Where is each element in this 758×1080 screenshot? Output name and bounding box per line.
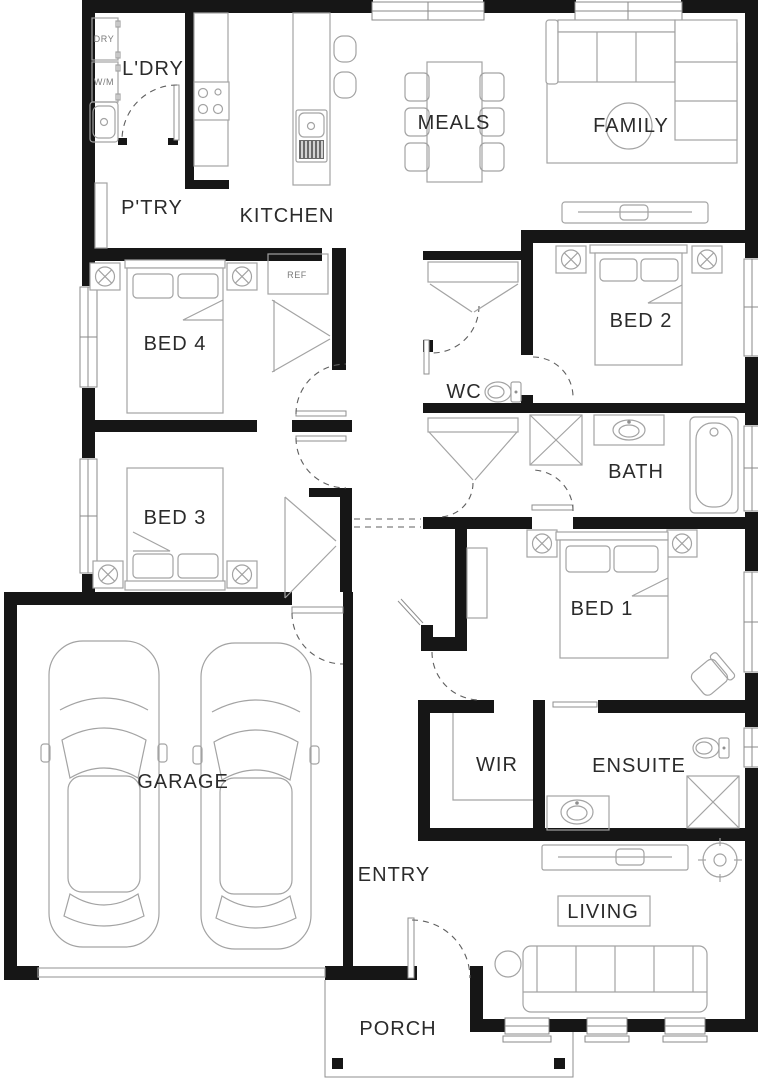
room-label-bed1: BED 1 [571, 598, 634, 620]
ensuite-toilet [693, 738, 729, 758]
bedside-table [93, 561, 123, 588]
room-label-entry: ENTRY [358, 864, 430, 886]
bedside-table [667, 530, 697, 557]
room-label-living: LIVING [567, 901, 639, 923]
pantry-shelf [95, 183, 107, 248]
car [193, 643, 319, 949]
plant [698, 838, 742, 882]
laundry-door [122, 85, 179, 140]
room-label-wc: WC [446, 381, 481, 403]
bar-stool [334, 72, 356, 98]
room-label-bed3: BED 3 [144, 507, 207, 529]
bed1-cabinet [467, 548, 487, 618]
floor-plan: L'DRY P'TRY KITCHEN MEALS FAMILY BED 4 B… [0, 0, 758, 1080]
bar-stool [334, 36, 356, 62]
living-sofa [523, 946, 707, 1012]
garage-contents [38, 641, 325, 977]
window-living-bottom-3 [663, 1018, 707, 1042]
room-label-ensuite: ENSUITE [592, 755, 686, 777]
ensuite-shower [687, 776, 739, 828]
hall-opening-dashes [354, 519, 421, 527]
linen-shelf [428, 262, 518, 282]
bed1-armchair [688, 652, 736, 700]
side-table [495, 951, 521, 977]
porch-post [332, 1058, 343, 1069]
bath-door [532, 470, 573, 511]
window-family-top [575, 0, 682, 20]
fixture-label-dryer: DRY [94, 34, 115, 44]
room-label-garage: GARAGE [137, 771, 229, 793]
fixture-label-fridge: REF [287, 270, 307, 280]
bedside-table [90, 263, 120, 290]
ensuite-door [553, 702, 597, 707]
bed2-door [533, 357, 573, 397]
window-bed2-right [744, 258, 758, 357]
bed3-bed [125, 468, 225, 590]
wc-fixtures [428, 262, 521, 480]
ensuite-vanity [547, 796, 609, 830]
bed3-furniture [93, 468, 336, 598]
room-label-porch: PORCH [359, 1018, 436, 1040]
bath-shower [530, 415, 582, 465]
bedside-table [527, 530, 557, 557]
room-label-kitchen: KITCHEN [240, 205, 335, 227]
bed4-furniture [90, 260, 330, 413]
cooktop [194, 82, 229, 120]
fixture-label-washer: W/M [94, 77, 114, 87]
bed3-robe [285, 497, 336, 598]
window-meals-top [372, 0, 484, 20]
window-living-bottom-2 [585, 1018, 629, 1042]
bed1-bed [556, 532, 668, 658]
room-label-family: FAMILY [593, 115, 669, 137]
bathtub [690, 417, 738, 513]
room-label-meals: MEALS [418, 112, 491, 134]
bed2-bed [590, 245, 687, 365]
bedside-table [227, 561, 257, 588]
family-tv-unit [562, 202, 708, 223]
room-label-bed2: BED 2 [610, 310, 673, 332]
window-bed3-left [80, 458, 97, 574]
room-label-bath: BATH [608, 461, 664, 483]
bed4-door [296, 364, 346, 416]
bed2-furniture [556, 245, 722, 365]
hall-closet-door [439, 483, 473, 517]
window-bed1-right [744, 571, 758, 673]
front-door [408, 918, 470, 978]
bath-vanity [594, 415, 664, 445]
window-bed4-left [80, 286, 97, 388]
bedside-table [556, 246, 586, 273]
room-label-ptry: P'TRY [121, 197, 183, 219]
bed3-door [296, 436, 346, 488]
bed4-robe [272, 300, 330, 372]
wc-toilet [485, 382, 521, 402]
window-living-bottom-1 [503, 1018, 551, 1042]
room-label-wir: WIR [476, 754, 518, 776]
bedside-table [227, 263, 257, 290]
floor-plan-canvas: L'DRY P'TRY KITCHEN MEALS FAMILY BED 4 B… [0, 0, 758, 1080]
car [41, 641, 167, 947]
garage-internal-door [292, 607, 343, 664]
room-label-ldry: L'DRY [122, 58, 184, 80]
window-bath-right [744, 425, 758, 512]
porch-post [554, 1058, 565, 1069]
interior-walls [82, 13, 758, 841]
hall-linen-closet [428, 418, 518, 480]
bedside-table [692, 246, 722, 273]
living-tv-unit [542, 845, 688, 870]
room-label-bed4: BED 4 [144, 333, 207, 355]
kitchen-sink [296, 110, 327, 162]
window-ensuite-right [744, 727, 758, 768]
garage-door [38, 968, 325, 977]
ensuite-fixtures [547, 738, 739, 830]
living-furniture [495, 838, 742, 1012]
